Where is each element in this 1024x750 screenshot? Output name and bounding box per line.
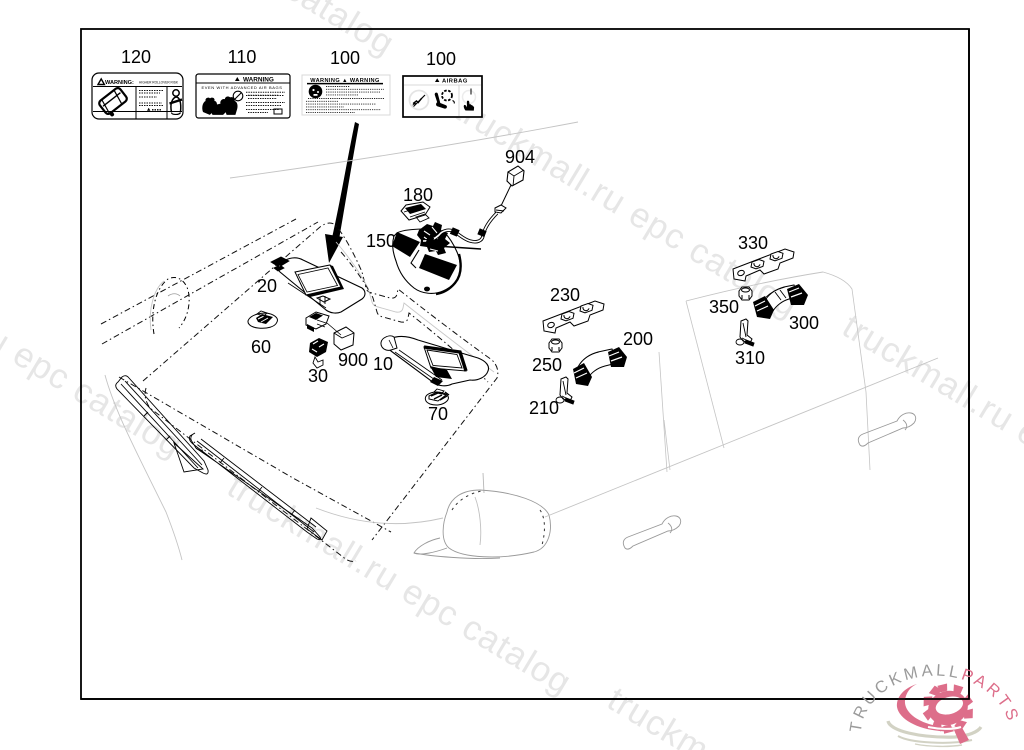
svg-text:330: 330 xyxy=(738,233,768,253)
svg-text:300: 300 xyxy=(789,313,819,333)
svg-text:30: 30 xyxy=(308,366,328,386)
svg-text:EVEN WITH ADVANCED AIR BAGS: EVEN WITH ADVANCED AIR BAGS xyxy=(201,85,282,90)
svg-text:60: 60 xyxy=(251,337,271,357)
svg-text:110: 110 xyxy=(228,47,257,67)
svg-text:310: 310 xyxy=(735,348,765,368)
svg-text:350: 350 xyxy=(709,297,739,317)
svg-text:230: 230 xyxy=(550,285,580,305)
svg-text:180: 180 xyxy=(403,185,433,205)
svg-text:100: 100 xyxy=(330,48,360,68)
svg-text:900: 900 xyxy=(338,350,368,370)
svg-text:150: 150 xyxy=(366,231,396,251)
svg-text:20: 20 xyxy=(257,276,277,296)
svg-text:120: 120 xyxy=(121,47,151,67)
svg-text:HIGHER ROLLOVER RISK: HIGHER ROLLOVER RISK xyxy=(139,80,179,84)
svg-text:100: 100 xyxy=(426,49,456,69)
svg-text:210: 210 xyxy=(529,398,559,418)
svg-text:70: 70 xyxy=(428,404,448,424)
svg-text:WARNING: WARNING xyxy=(243,76,274,83)
svg-text:WARNING:: WARNING: xyxy=(105,80,134,86)
svg-text:250: 250 xyxy=(532,355,562,375)
svg-text:10: 10 xyxy=(373,354,393,374)
svg-text:200: 200 xyxy=(623,329,653,349)
svg-text:AIRBAG: AIRBAG xyxy=(442,78,468,84)
svg-text:904: 904 xyxy=(505,147,535,167)
